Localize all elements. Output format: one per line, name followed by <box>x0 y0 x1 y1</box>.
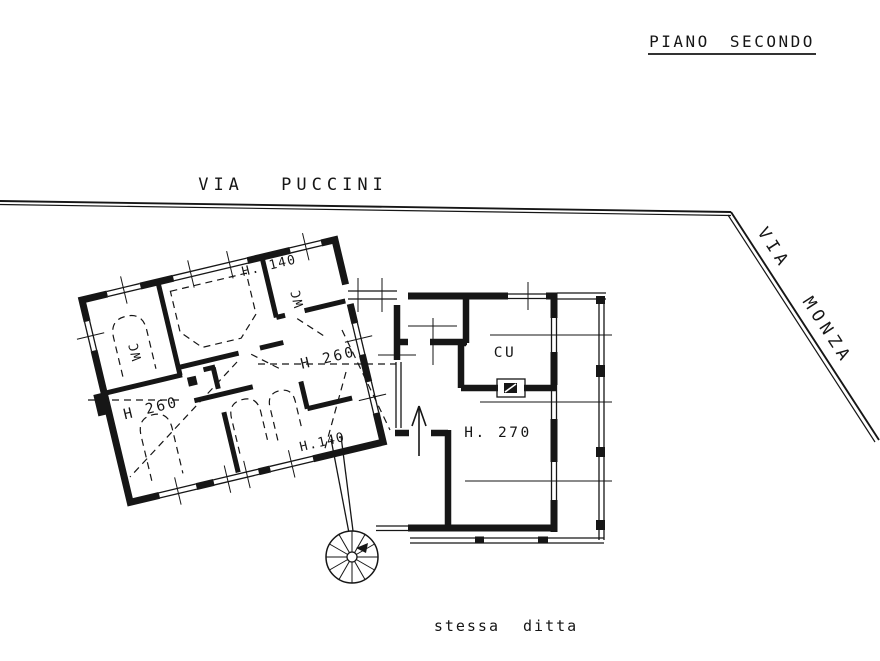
balcony-post <box>596 296 605 304</box>
dashed-arch-2 <box>267 388 303 441</box>
left-building: H. 140 WC H 260 WC H 260 H.140 <box>65 223 400 519</box>
balcony-post <box>596 365 605 377</box>
stair-center-post <box>347 552 357 562</box>
connecting-corridor <box>348 278 397 312</box>
spiral-staircase <box>326 436 409 583</box>
right-wall-windows <box>465 318 612 500</box>
room-label-wc-left: WC <box>126 340 145 362</box>
street-line-monza-outer <box>731 212 879 440</box>
street-via-puccini: VIA PUCCINI <box>0 175 731 216</box>
balcony-post <box>538 537 548 544</box>
vestibule-kitchen-wall <box>461 296 466 388</box>
balcony-post <box>596 520 605 530</box>
footer-note: stessa ditta <box>434 617 578 635</box>
room-label-h260-left: H 260 <box>122 395 180 424</box>
balcony <box>410 293 606 544</box>
direction-arrow <box>412 406 426 456</box>
pillar <box>187 376 198 387</box>
room-label-h270: H. 270 <box>464 425 531 441</box>
left-building-outline <box>82 240 383 503</box>
room-label-kitchen: CU <box>494 345 516 361</box>
street-line-monza-inner <box>728 215 875 442</box>
page-title: PIANO SECONDO <box>649 32 815 51</box>
balcony-post <box>596 447 605 457</box>
street-via-monza: VIA MONZA <box>728 212 879 442</box>
street-label-monza: VIA MONZA <box>753 224 856 368</box>
attic-slope-outline <box>170 273 260 351</box>
top-wall-window <box>508 282 546 310</box>
room-label-h260-right: H 260 <box>299 344 357 373</box>
bathtub-outline-room <box>137 411 183 481</box>
floor-plan-page: PIANO SECONDO VIA PUCCINI VIA MONZA <box>0 0 880 661</box>
balcony-post <box>475 537 484 544</box>
dashed-hip-1 <box>130 362 237 477</box>
street-label-puccini: VIA PUCCINI <box>198 175 388 195</box>
room-label-wc-top: WC <box>288 287 307 309</box>
right-building: CU H. 270 <box>378 282 612 544</box>
title-block: PIANO SECONDO <box>648 32 816 54</box>
